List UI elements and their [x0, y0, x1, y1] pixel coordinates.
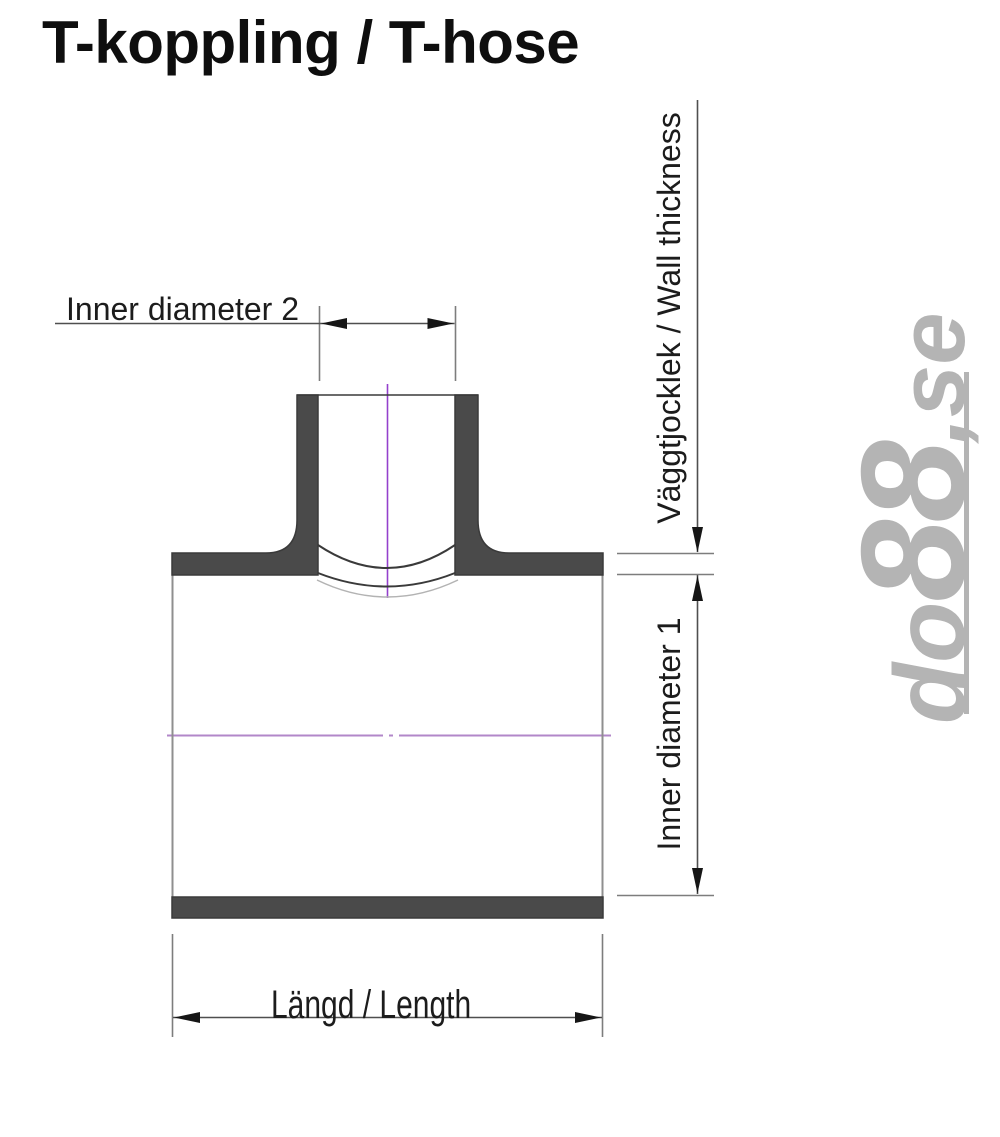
- watermark-prefix: do: [874, 602, 986, 724]
- inner-diameter-2-label: Inner diameter 2: [66, 290, 299, 328]
- length-label: Längd / Length: [271, 983, 471, 1027]
- saddle-curve-inner: [318, 573, 455, 587]
- id2-arrow-left: [321, 318, 347, 329]
- tee-wall-left: [172, 395, 318, 575]
- saddle-curve-outer: [318, 545, 455, 568]
- id1-arrow-up: [692, 576, 703, 602]
- wall-arrow-down: [692, 527, 703, 553]
- tee-wall-right: [455, 395, 603, 575]
- watermark-underline: [964, 372, 969, 714]
- diagram-canvas: T-koppling / T-hose: [0, 0, 1000, 1137]
- wall-thickness-label: Väggtjocklek / Wall thickness: [650, 103, 688, 533]
- watermark-number: 88: [831, 443, 996, 602]
- length-arrow-left: [174, 1012, 200, 1023]
- inner-diameter-1-label: Inner diameter 1: [650, 616, 688, 852]
- tee-wall-bottom: [172, 897, 603, 918]
- id1-arrow-down: [692, 868, 703, 894]
- watermark-do88-logo: do88,se: [864, 219, 974, 724]
- length-arrow-right: [575, 1012, 601, 1023]
- id2-arrow-right: [428, 318, 454, 329]
